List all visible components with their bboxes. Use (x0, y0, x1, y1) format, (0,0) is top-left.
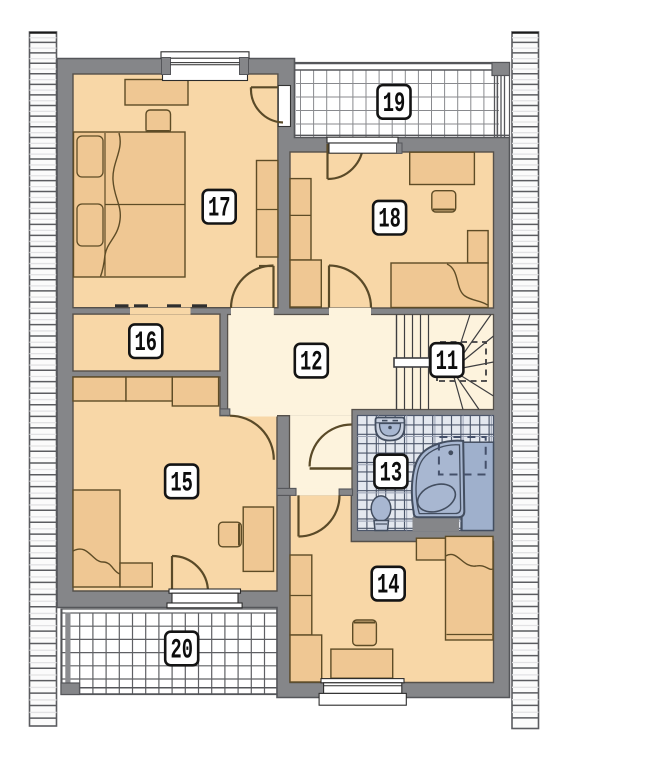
svg-text:13: 13 (380, 459, 403, 490)
svg-text:18: 18 (378, 205, 401, 236)
svg-text:20: 20 (170, 636, 193, 667)
svg-text:11: 11 (436, 347, 459, 378)
svg-text:16: 16 (135, 328, 158, 359)
svg-text:14: 14 (377, 571, 400, 602)
svg-text:15: 15 (170, 468, 193, 499)
svg-text:19: 19 (383, 89, 406, 120)
svg-text:12: 12 (300, 348, 323, 379)
svg-text:17: 17 (208, 194, 231, 225)
